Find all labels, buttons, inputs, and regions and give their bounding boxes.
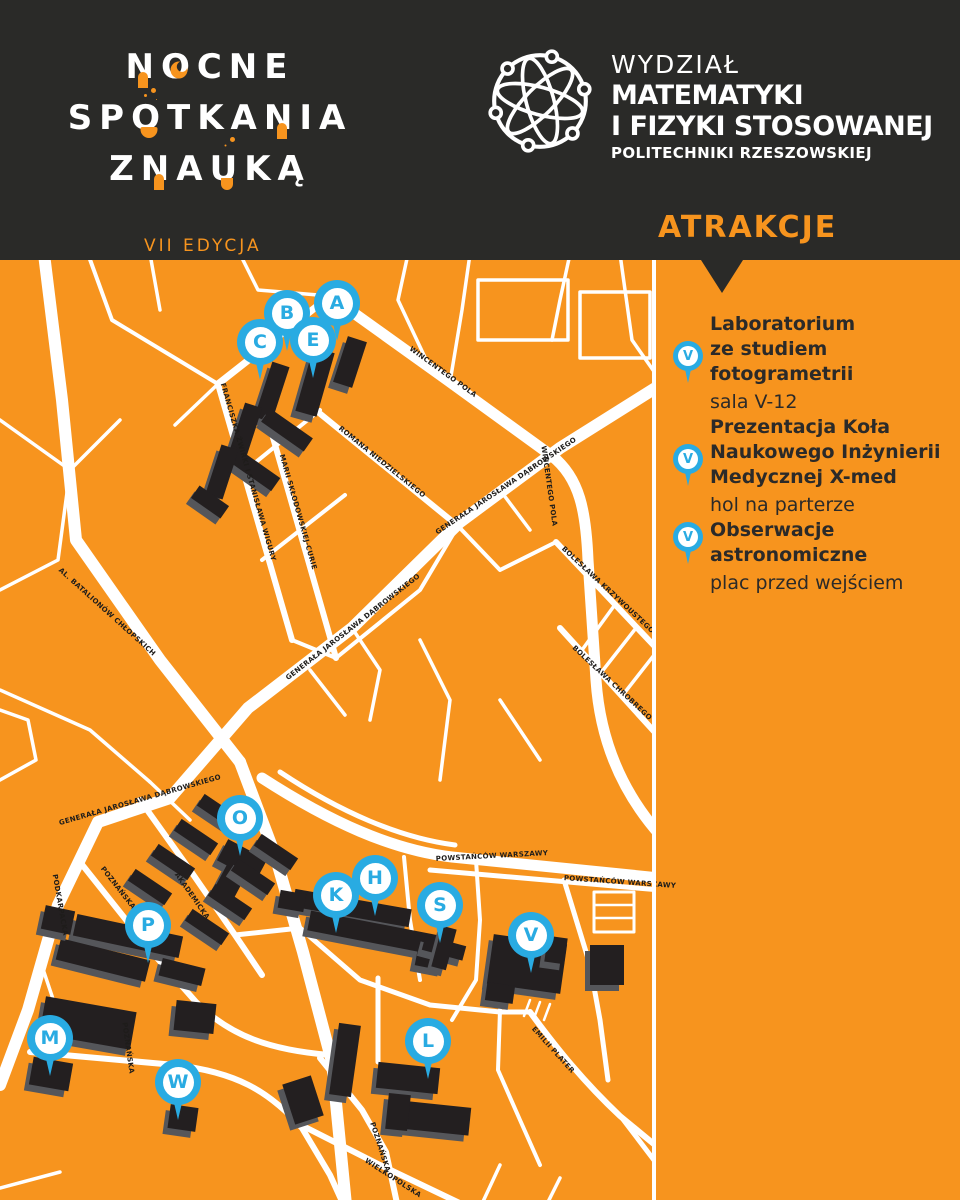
edition-label: VII EDYCJA	[144, 236, 262, 256]
logo-letter-tube: U	[210, 144, 245, 195]
pin-circle: V	[673, 341, 703, 371]
map-pin-V: V	[673, 444, 703, 488]
pin-circle: S	[417, 882, 463, 928]
faculty-line-3: I FIZYKI STOSOWANEJ	[611, 111, 933, 142]
pin-circle: V	[673, 444, 703, 474]
pin-circle: M	[27, 1015, 73, 1061]
logo-letter-door: N	[264, 93, 299, 144]
map-pin-S[interactable]: S	[417, 882, 463, 946]
pin-circle: E	[290, 317, 336, 363]
logo-letters: Z	[109, 144, 141, 195]
logo-letters: IA	[299, 93, 352, 144]
poster: { "colors": { "orange": "#F7941E", "dark…	[0, 0, 960, 1200]
logo-line-2: SPOTKANIA	[40, 93, 380, 144]
pin-letter: O	[225, 803, 256, 834]
pin-letter: E	[298, 325, 329, 356]
logo-letters: KĄ	[244, 144, 311, 195]
logo-letters: SP	[68, 93, 131, 144]
section-title-atrakcje: ATRAKCJE	[658, 210, 837, 245]
map-pin-C[interactable]: C	[237, 319, 283, 383]
pin-stem	[684, 369, 692, 383]
pin-letter: P	[133, 910, 164, 941]
logo-letter-flask: O	[131, 93, 167, 144]
pin-letter: H	[360, 863, 391, 894]
map-pin-W[interactable]: W	[155, 1059, 201, 1123]
pin-letter: W	[163, 1067, 194, 1098]
pin-circle: V	[508, 912, 554, 958]
pin-circle: K	[313, 872, 359, 918]
map-pin-P[interactable]: P	[125, 902, 171, 966]
pin-circle: P	[125, 902, 171, 948]
faculty-line-1: WYDZIAŁ	[611, 50, 933, 80]
pin-letter: A	[322, 288, 353, 319]
logo-letter-moon: O	[161, 42, 197, 93]
attraction-text: Obserwacjeastronomiczneplac przed wejści…	[710, 518, 956, 596]
pin-circle: W	[155, 1059, 201, 1105]
section-pointer-triangle	[701, 260, 743, 293]
attractions-sidebar: VLaboratoriumze studiemfotogrametriisala…	[656, 260, 960, 1200]
attraction-item: VLaboratoriumze studiemfotogrametriisala…	[656, 312, 956, 415]
attraction-location: plac przed wejściem	[710, 571, 956, 596]
attraction-title: Laboratoriumze studiemfotogrametrii	[710, 312, 956, 387]
logo-line-1: NOCNE	[40, 42, 380, 93]
map-pin-E[interactable]: E	[290, 317, 336, 381]
map-pin-O[interactable]: O	[217, 795, 263, 859]
logo-line-3: Z NAUKĄ	[40, 144, 380, 195]
pin-letter: S	[425, 890, 456, 921]
attraction-text: Laboratoriumze studiemfotogrametriisala …	[710, 312, 956, 415]
attraction-location: hol na parterze	[710, 493, 956, 518]
pin-letter: K	[321, 880, 352, 911]
atom-icon	[485, 46, 595, 156]
pin-letter: L	[413, 1026, 444, 1057]
attraction-title: Prezentacja KołaNaukowego InżynieriiMedy…	[710, 415, 956, 490]
pin-letter: C	[245, 327, 276, 358]
attraction-item: VPrezentacja KołaNaukowego InżynieriiMed…	[656, 415, 956, 518]
logo-letters: CNE	[197, 42, 295, 93]
faculty-name: WYDZIAŁ MATEMATYKI I FIZYKI STOSOWANEJ P…	[611, 50, 933, 165]
pin-letter: V	[678, 449, 698, 469]
faculty-line-4: POLITECHNIKI RZESZOWSKIEJ	[611, 142, 933, 165]
map-pin-V[interactable]: V	[508, 912, 554, 976]
pin-stem	[684, 472, 692, 486]
pin-circle: L	[405, 1018, 451, 1064]
map-pin-K[interactable]: K	[313, 872, 359, 936]
pin-letter: V	[516, 920, 547, 951]
pin-circle: V	[673, 522, 703, 552]
logo-letter-door: N	[141, 144, 176, 195]
header: NOCNE SPOTKANIA Z NAUKĄ VII EDYCJA WYDZI…	[0, 0, 960, 260]
pin-circle: C	[237, 319, 283, 365]
map-pin-M[interactable]: M	[27, 1015, 73, 1079]
attraction-title: Obserwacjeastronomiczne	[710, 518, 956, 568]
pin-circle: O	[217, 795, 263, 841]
map-pin-L[interactable]: L	[405, 1018, 451, 1082]
pin-letter: V	[678, 346, 698, 366]
pin-letter: M	[35, 1023, 66, 1054]
map-pin-V: V	[673, 341, 703, 385]
logo-letter-door: N	[125, 42, 160, 93]
attraction-text: Prezentacja KołaNaukowego InżynieriiMedy…	[710, 415, 956, 518]
logo-letters: TKA	[167, 93, 264, 144]
pin-stem	[684, 550, 692, 564]
logo-letters: A	[176, 144, 209, 195]
map-pin-V: V	[673, 522, 703, 566]
faculty-line-2: MATEMATYKI	[611, 80, 933, 111]
pin-letter: V	[678, 527, 698, 547]
attraction-location: sala V-12	[710, 390, 956, 415]
attraction-item: VObserwacjeastronomiczneplac przed wejśc…	[656, 518, 956, 596]
event-logo: NOCNE SPOTKANIA Z NAUKĄ VII EDYCJA	[40, 42, 380, 195]
faculty-logo: WYDZIAŁ MATEMATYKI I FIZYKI STOSOWANEJ P…	[485, 46, 933, 165]
